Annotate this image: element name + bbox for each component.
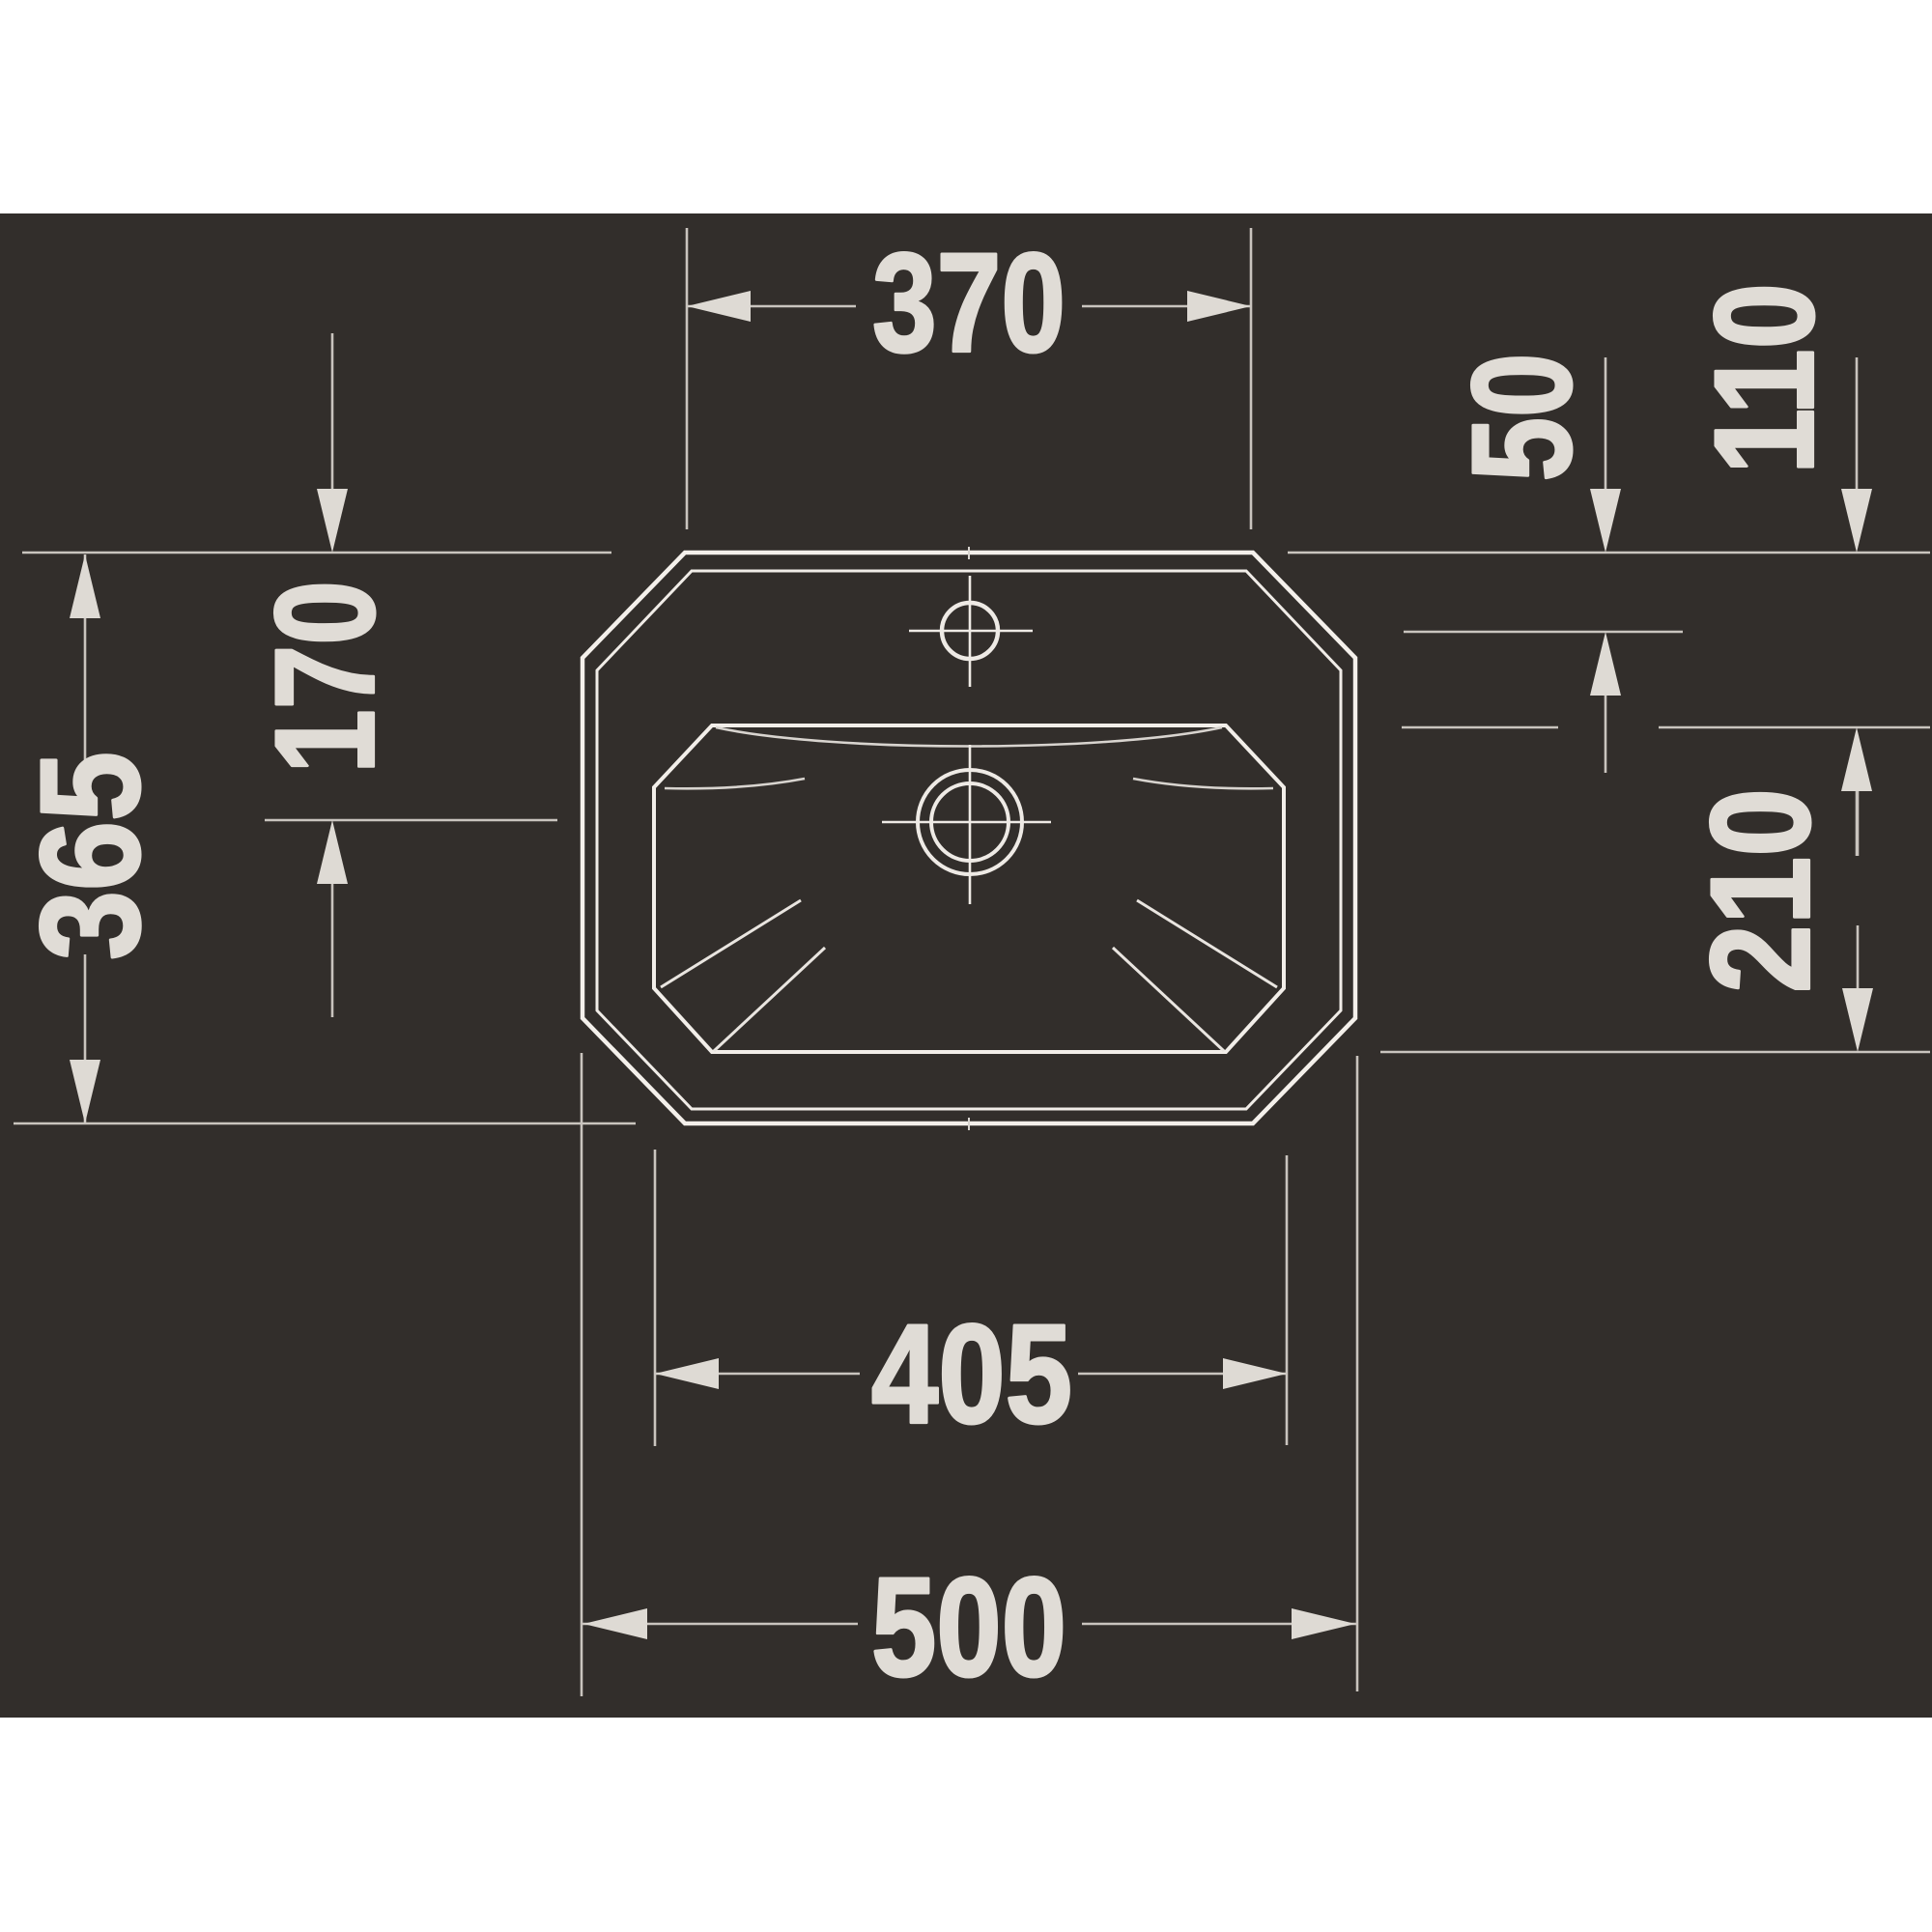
svg-text:365: 365 [12,752,169,960]
svg-text:370: 370 [872,224,1065,382]
svg-text:210: 210 [1682,788,1839,993]
svg-text:110: 110 [1686,283,1843,474]
svg-text:405: 405 [871,1295,1072,1453]
svg-text:500: 500 [871,1548,1066,1706]
svg-text:50: 50 [1443,354,1601,482]
svg-text:170: 170 [246,581,404,774]
